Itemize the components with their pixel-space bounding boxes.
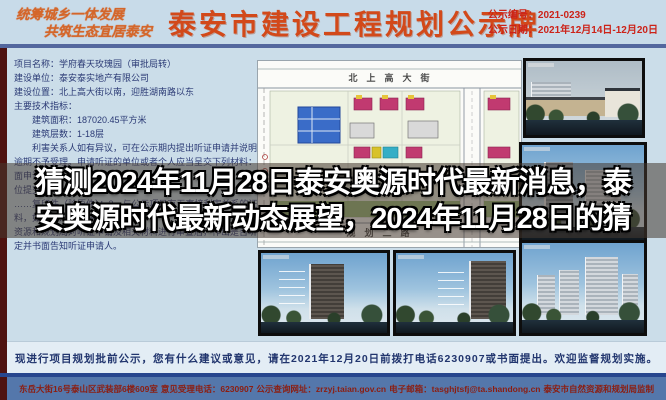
footer-website: 公示查询网址：zrzyj.taian.gov.cn (256, 383, 386, 395)
tree-line (526, 102, 642, 121)
slogan-line1: 统筹城乡一体发展 (16, 6, 152, 23)
planning-notice-board: 统筹城乡一体发展 共筑生态宜居泰安 泰安市建设工程规划公示牌 公示编号：2021… (0, 0, 666, 400)
notice-number: 公示编号：2021-0239 (488, 8, 658, 23)
rendering-image (526, 61, 642, 135)
image-caption-tag (263, 255, 289, 259)
info-line-hearing-8: 定并书面告知听证申请人。 (14, 239, 258, 253)
headline-line1: 猜测2024年11月28日泰安奥源时代最新消息，泰 (35, 165, 630, 201)
rendering-image (396, 253, 513, 333)
info-line-indicators: 主要技术指标： (14, 99, 258, 113)
reflecting-pool (526, 120, 642, 135)
tree-line (261, 303, 387, 324)
image-caption-tag (524, 245, 550, 249)
water-reflection (261, 322, 387, 333)
rendering-image (522, 243, 644, 333)
footer-address: 东岳大街16号泰山区武装部6楼609室 (19, 383, 158, 395)
page-title: 泰安市建设工程规划公示牌 (168, 3, 540, 43)
info-line-location: 建设位置：北上高大街以南，迎胜湖南路以东 (14, 85, 258, 99)
bottom-notice-text: 现进行项目规划批前公示，您有什么建议或意见，请在2021年12月20日前拨打电话… (15, 351, 658, 366)
footer-producer: 泰安市自然资源和规划局监制 (543, 383, 654, 395)
bottom-notice-row: 现进行项目规划批前公示，您有什么建议或意见，请在2021年12月20日前拨打电话… (7, 341, 666, 374)
rendering-cluster (519, 240, 647, 336)
blue-building-block (298, 107, 340, 143)
headline-line2: 安奥源时代最新动态展望，2024年11月28日的猜 (35, 201, 630, 237)
footer-phone: 意见受理电话：6230907 (161, 383, 254, 395)
info-line-hearing-1: 利害关系人如有异议，可在公示期内提出听证申请并说明理由， (14, 141, 258, 155)
image-caption-tag (524, 147, 550, 151)
water-reflection (396, 322, 513, 333)
image-caption-tag (398, 255, 424, 259)
rendering-tower-right (393, 250, 516, 336)
tree-line (522, 299, 644, 322)
info-line-project-name: 项目名称：学府春天玫瑰园（审批局转） (14, 57, 258, 71)
ground (522, 320, 644, 333)
notice-date-range: 公示日期：2021年12月14日-12月20日 (488, 23, 658, 38)
slogan: 统筹城乡一体发展 共筑生态宜居泰安 (16, 6, 152, 40)
info-line-builder: 建设单位：泰安泰实地产有限公司 (14, 71, 258, 85)
headline-overlay: 猜测2024年11月28日泰安奥源时代最新消息，泰 安奥源时代最新动态展望，20… (0, 163, 666, 238)
annotation-lines (438, 272, 464, 306)
footer-email: 电子邮箱：tasghjtsfj@ta.shandong.cn (389, 383, 540, 395)
header: 统筹城乡一体发展 共筑生态宜居泰安 泰安市建设工程规划公示牌 公示编号：2021… (0, 0, 666, 46)
info-line-floors: 建筑层数：1-18层 (14, 127, 258, 141)
footer-bar: 东岳大街16号泰山区武装部6楼609室 意见受理电话：6230907 公示查询网… (7, 377, 666, 400)
slogan-line2: 共筑生态宜居泰安 (44, 23, 152, 40)
rendering-courtyard (523, 58, 645, 138)
street-label-top: 北 上 高 大 街 (348, 72, 429, 83)
header-divider (0, 44, 666, 48)
notice-meta: 公示编号：2021-0239 公示日期：2021年12月14日-12月20日 (488, 8, 658, 38)
info-line-area: 建筑面积：187020.45平方米 (14, 113, 258, 127)
rendering-tower-left (258, 250, 390, 336)
image-caption-tag (528, 63, 554, 67)
annotation-lines (279, 271, 305, 305)
tree-line (396, 303, 513, 324)
rendering-image (261, 253, 387, 333)
